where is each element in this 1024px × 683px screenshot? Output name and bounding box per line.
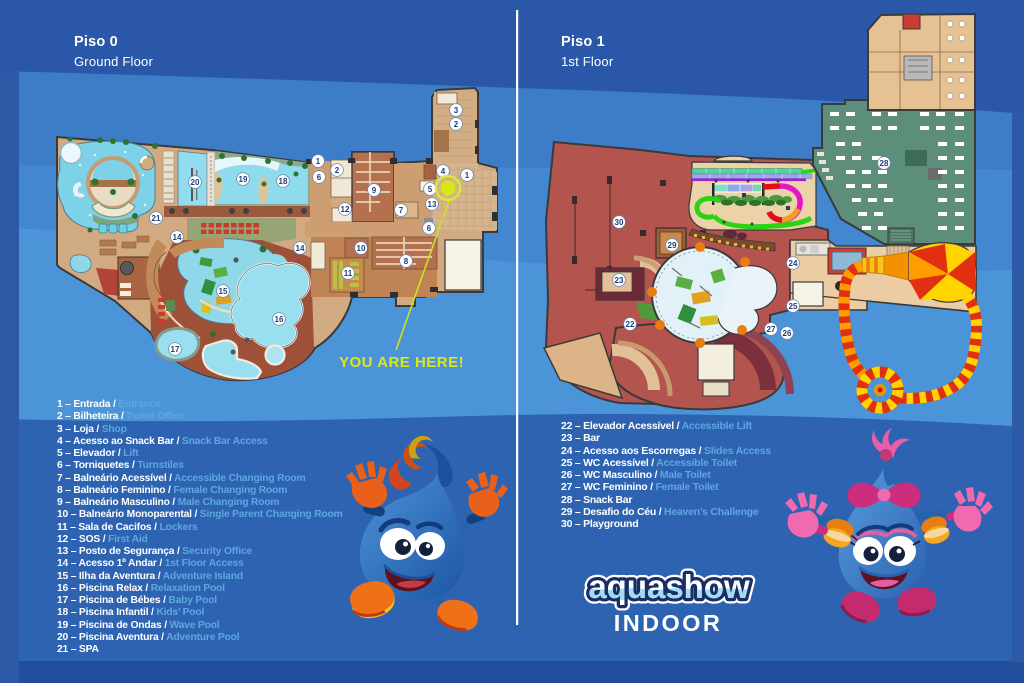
svg-text:2: 2: [335, 166, 340, 175]
svg-text:1: 1: [316, 157, 321, 166]
svg-text:24: 24: [789, 259, 798, 268]
svg-text:13: 13: [428, 200, 437, 209]
svg-text:7: 7: [399, 206, 404, 215]
svg-text:15: 15: [219, 287, 228, 296]
svg-text:12: 12: [341, 205, 350, 214]
svg-text:11: 11: [344, 269, 353, 278]
svg-text:19: 19: [239, 175, 248, 184]
svg-text:10: 10: [357, 244, 366, 253]
svg-text:16: 16: [275, 315, 284, 324]
svg-text:2: 2: [454, 120, 459, 129]
svg-text:23: 23: [615, 276, 624, 285]
svg-text:5: 5: [428, 185, 433, 194]
svg-text:9: 9: [372, 186, 377, 195]
svg-text:1: 1: [465, 171, 470, 180]
svg-text:14: 14: [173, 233, 182, 242]
svg-text:26: 26: [783, 329, 792, 338]
svg-text:21: 21: [152, 214, 161, 223]
svg-text:4: 4: [441, 167, 446, 176]
svg-text:6: 6: [317, 173, 322, 182]
svg-text:3: 3: [454, 106, 459, 115]
svg-text:20: 20: [191, 178, 200, 187]
svg-text:29: 29: [668, 241, 677, 250]
svg-text:28: 28: [880, 159, 889, 168]
svg-text:6: 6: [427, 224, 432, 233]
svg-text:25: 25: [789, 302, 798, 311]
svg-text:27: 27: [767, 325, 776, 334]
svg-text:18: 18: [279, 177, 288, 186]
svg-text:30: 30: [615, 218, 624, 227]
svg-text:8: 8: [404, 257, 409, 266]
svg-text:INDOOR: INDOOR: [614, 610, 722, 636]
svg-text:17: 17: [171, 345, 180, 354]
svg-text:22: 22: [626, 320, 635, 329]
svg-text:14: 14: [296, 244, 305, 253]
